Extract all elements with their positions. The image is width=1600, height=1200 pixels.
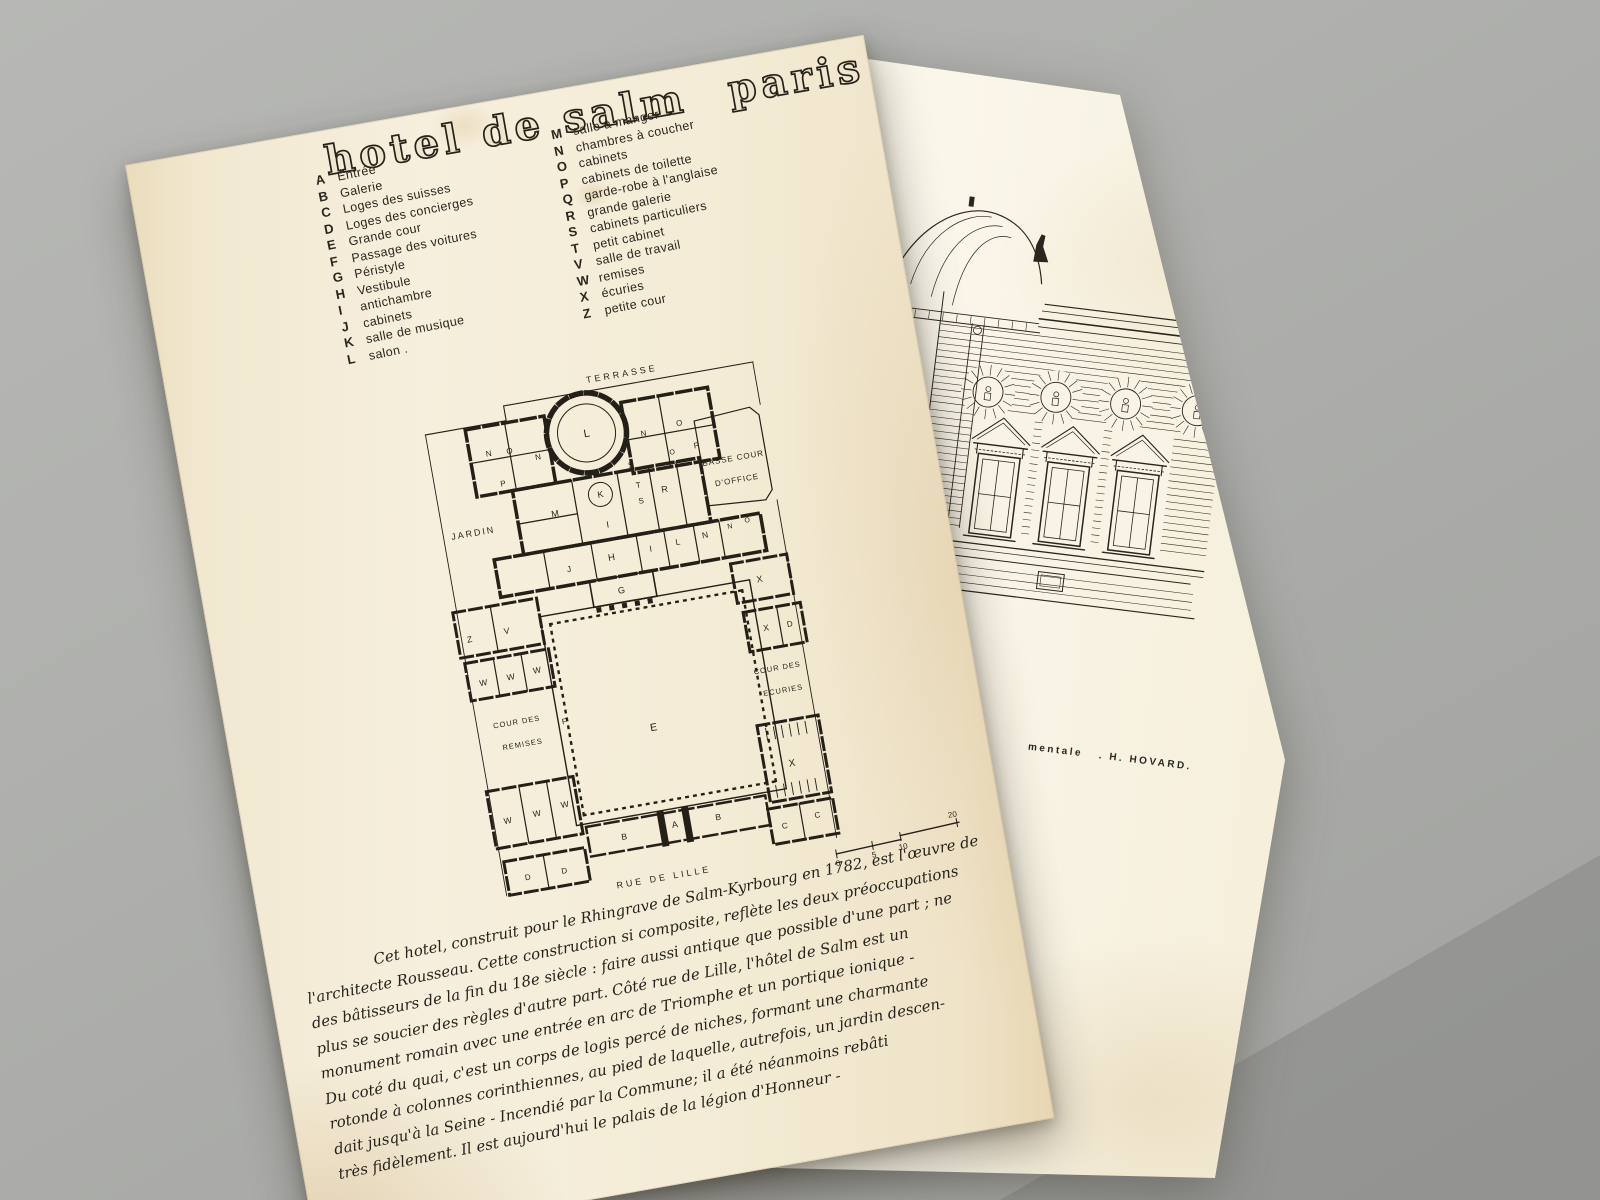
plan-label-terrasse: TERRASSE: [585, 363, 658, 385]
statue-icon: [1033, 234, 1051, 264]
room-letter: B: [621, 831, 629, 842]
room-letter: N: [485, 449, 492, 459]
scale-tick: 20: [947, 809, 958, 820]
plan-label-cour-ecuries: ECURIES: [763, 682, 804, 698]
plan-label-cour-remises: REMISES: [502, 736, 544, 752]
room-letter: W: [560, 799, 570, 810]
caption-author: . H. HOVARD.: [1098, 750, 1192, 772]
room-letter: W: [503, 815, 513, 826]
room-letter: B: [715, 811, 723, 822]
room-letter: K: [597, 489, 605, 500]
room-letter: O: [744, 517, 751, 525]
room-letter: O: [506, 446, 514, 456]
room-letter: T: [635, 480, 641, 490]
plan-label-basse-cour: BASSE COUR: [702, 448, 765, 468]
room-letter: Z: [466, 634, 473, 645]
room-letter: N: [640, 429, 647, 439]
room-letter: L: [583, 427, 591, 440]
plan-label-cour-ecuries: COUR DES: [753, 659, 801, 676]
room-letter: I: [649, 543, 653, 553]
floor-plan-drawing: TERRASSE JARDIN BASSE COUR D'OFFICE COUR…: [391, 238, 971, 932]
room-letter: N: [727, 523, 733, 531]
room-letter: W: [479, 677, 489, 688]
room-letter: R: [660, 484, 669, 495]
room-letter: C: [781, 821, 788, 831]
room-letter: X: [762, 622, 770, 633]
room-letter: W: [506, 671, 516, 682]
room-letter: A: [671, 819, 679, 830]
plan-label-basse-cour: D'OFFICE: [714, 472, 760, 489]
room-letter: W: [532, 808, 542, 819]
room-letter: O: [669, 449, 676, 457]
room-letter: S: [627, 460, 634, 470]
room-letter: D: [524, 872, 531, 882]
room-letter: J: [566, 564, 572, 575]
room-letter: I: [606, 519, 610, 529]
room-letter: X: [756, 574, 764, 585]
plan-label-jardin: JARDIN: [450, 524, 496, 542]
room-letter: E: [649, 721, 658, 734]
drawing-caption: mentale. H. HOVARD.: [1027, 742, 1208, 775]
room-letter: W: [532, 665, 542, 676]
room-letter: H: [607, 552, 616, 564]
room-letter: L: [675, 536, 682, 547]
terrace-boundary: [423, 362, 756, 435]
room-letter: P: [693, 441, 700, 451]
room-letter: N: [534, 452, 541, 462]
room-letter: D: [786, 619, 793, 629]
plan-label-cour-remises: COUR DES: [492, 713, 540, 730]
room-letter: N: [701, 529, 709, 540]
room-letter: V: [503, 625, 511, 636]
room-letter: M: [551, 508, 560, 519]
room-letter: C: [814, 810, 821, 820]
room-letter: S: [638, 496, 645, 506]
dome-finial-icon: [969, 196, 975, 207]
handwritten-paragraph: Cet hotel, construit pour le Rhingrave d…: [301, 838, 1044, 1188]
grande-cour: [540, 580, 787, 826]
room-letter: D: [561, 866, 568, 876]
room-letter: G: [617, 585, 626, 596]
room-letter: O: [675, 418, 683, 428]
room-letter: X: [788, 758, 797, 770]
room-letter: P: [500, 479, 507, 489]
photo-of-documents: mentale. H. HOVARD. hotel de salm paris …: [0, 0, 1600, 1200]
caption-fragment: mentale: [1027, 742, 1083, 760]
